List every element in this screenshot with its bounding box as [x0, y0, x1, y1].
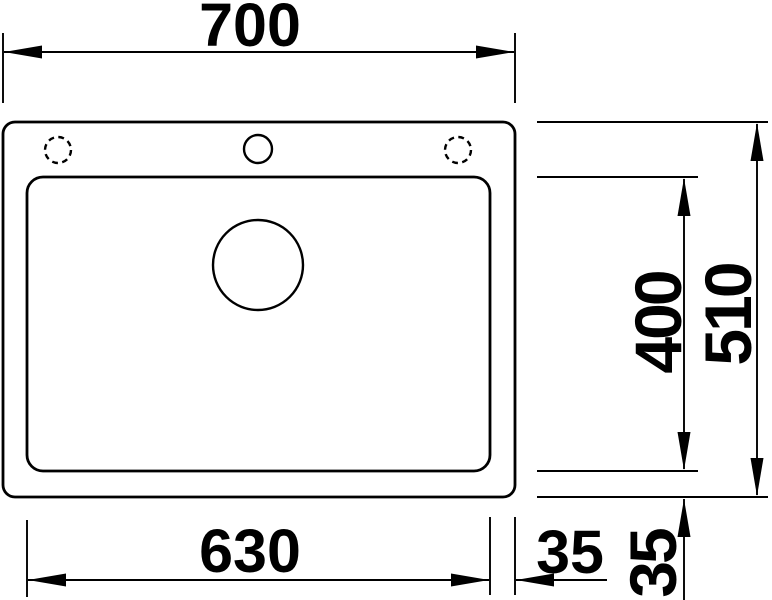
- dim-rim-offset-bottom: 35: [616, 499, 691, 600]
- dim-bowl-depth: 400: [537, 177, 698, 471]
- sink-dimension-drawing-canvas: 700 510 400 630: [0, 0, 772, 600]
- dim-label-overall-depth: 510: [691, 264, 765, 365]
- dim-label-bowl-depth: 400: [621, 272, 695, 373]
- tap-hole-left-dashed: [45, 137, 71, 163]
- sink-holes: [45, 135, 471, 310]
- dim-rim-offset-side: 35: [515, 517, 607, 595]
- dim-overall-width: 700: [3, 0, 515, 103]
- dim-label-overall-width: 700: [199, 0, 301, 59]
- arrowhead-up-icon: [678, 178, 691, 216]
- arrowhead-left-icon: [4, 46, 42, 59]
- dim-bowl-width: 630: [27, 517, 490, 597]
- arrowhead-right-icon: [476, 46, 514, 59]
- arrowhead-left-icon: [28, 574, 66, 587]
- dim-label-bowl-width: 630: [199, 517, 301, 585]
- drain-hole: [213, 220, 303, 310]
- dim-label-rim-offset-side: 35: [536, 518, 604, 586]
- tap-hole-center: [244, 135, 272, 163]
- arrowhead-down-icon: [751, 458, 764, 496]
- technical-drawing-page: 700 510 400 630: [0, 0, 772, 600]
- dim-label-rim-offset-bottom: 35: [616, 529, 690, 598]
- arrowhead-right-icon: [451, 574, 489, 587]
- arrowhead-down-icon: [678, 432, 691, 470]
- arrowhead-up-icon: [751, 123, 764, 161]
- tap-hole-right-dashed: [445, 137, 471, 163]
